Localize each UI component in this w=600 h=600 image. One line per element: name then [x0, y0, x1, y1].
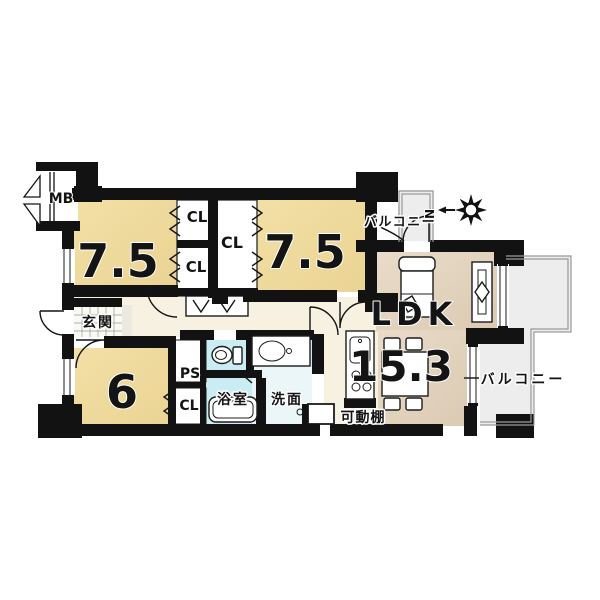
label-bedroom3-size: 6 [106, 365, 138, 419]
label-balcony-top: バルコニー [364, 215, 436, 230]
window-bedroom1-left [61, 246, 75, 286]
balcony-door-opening [404, 241, 430, 252]
label-closet-4: CL [179, 398, 198, 414]
label-entrance: 玄関 [82, 314, 114, 331]
chair [406, 398, 422, 410]
label-bedroom1-size: 7.5 [77, 234, 159, 288]
window-bedroom3-left [61, 356, 75, 398]
window-ldk-right-upper [497, 263, 509, 329]
label-closet-3: CL [186, 258, 207, 276]
floor-plan-svg: N MB 7.5 CL CL CL 7.5 バルコニー LDK 15.3 バルコ… [0, 0, 600, 600]
label-closet-2: CL [221, 233, 243, 252]
label-washroom: 洗面 [271, 391, 303, 408]
toilet-door-opening [214, 330, 236, 340]
label-bathroom: 浴室 [217, 391, 249, 408]
window-ldk-right-lower [467, 344, 479, 406]
label-balcony-right: バルコニー [481, 372, 566, 388]
toilet-fixture [212, 347, 242, 365]
label-meter-box: MB [49, 191, 74, 207]
label-pipe-space: PS [180, 366, 200, 382]
movable-shelf-niche [308, 404, 334, 424]
label-closet-1: CL [187, 208, 208, 226]
label-ldk-size: 15.3 [349, 342, 453, 391]
label-movable-shelf: 可動棚 [341, 409, 386, 426]
label-ldk-name: LDK [371, 295, 458, 333]
floor-plan-page: N MB 7.5 CL CL CL 7.5 バルコニー LDK 15.3 バルコ… [0, 0, 600, 600]
entrance-step [122, 305, 132, 337]
tv-board [472, 262, 492, 322]
label-bedroom2-size: 7.5 [264, 225, 346, 279]
chair [384, 398, 400, 410]
